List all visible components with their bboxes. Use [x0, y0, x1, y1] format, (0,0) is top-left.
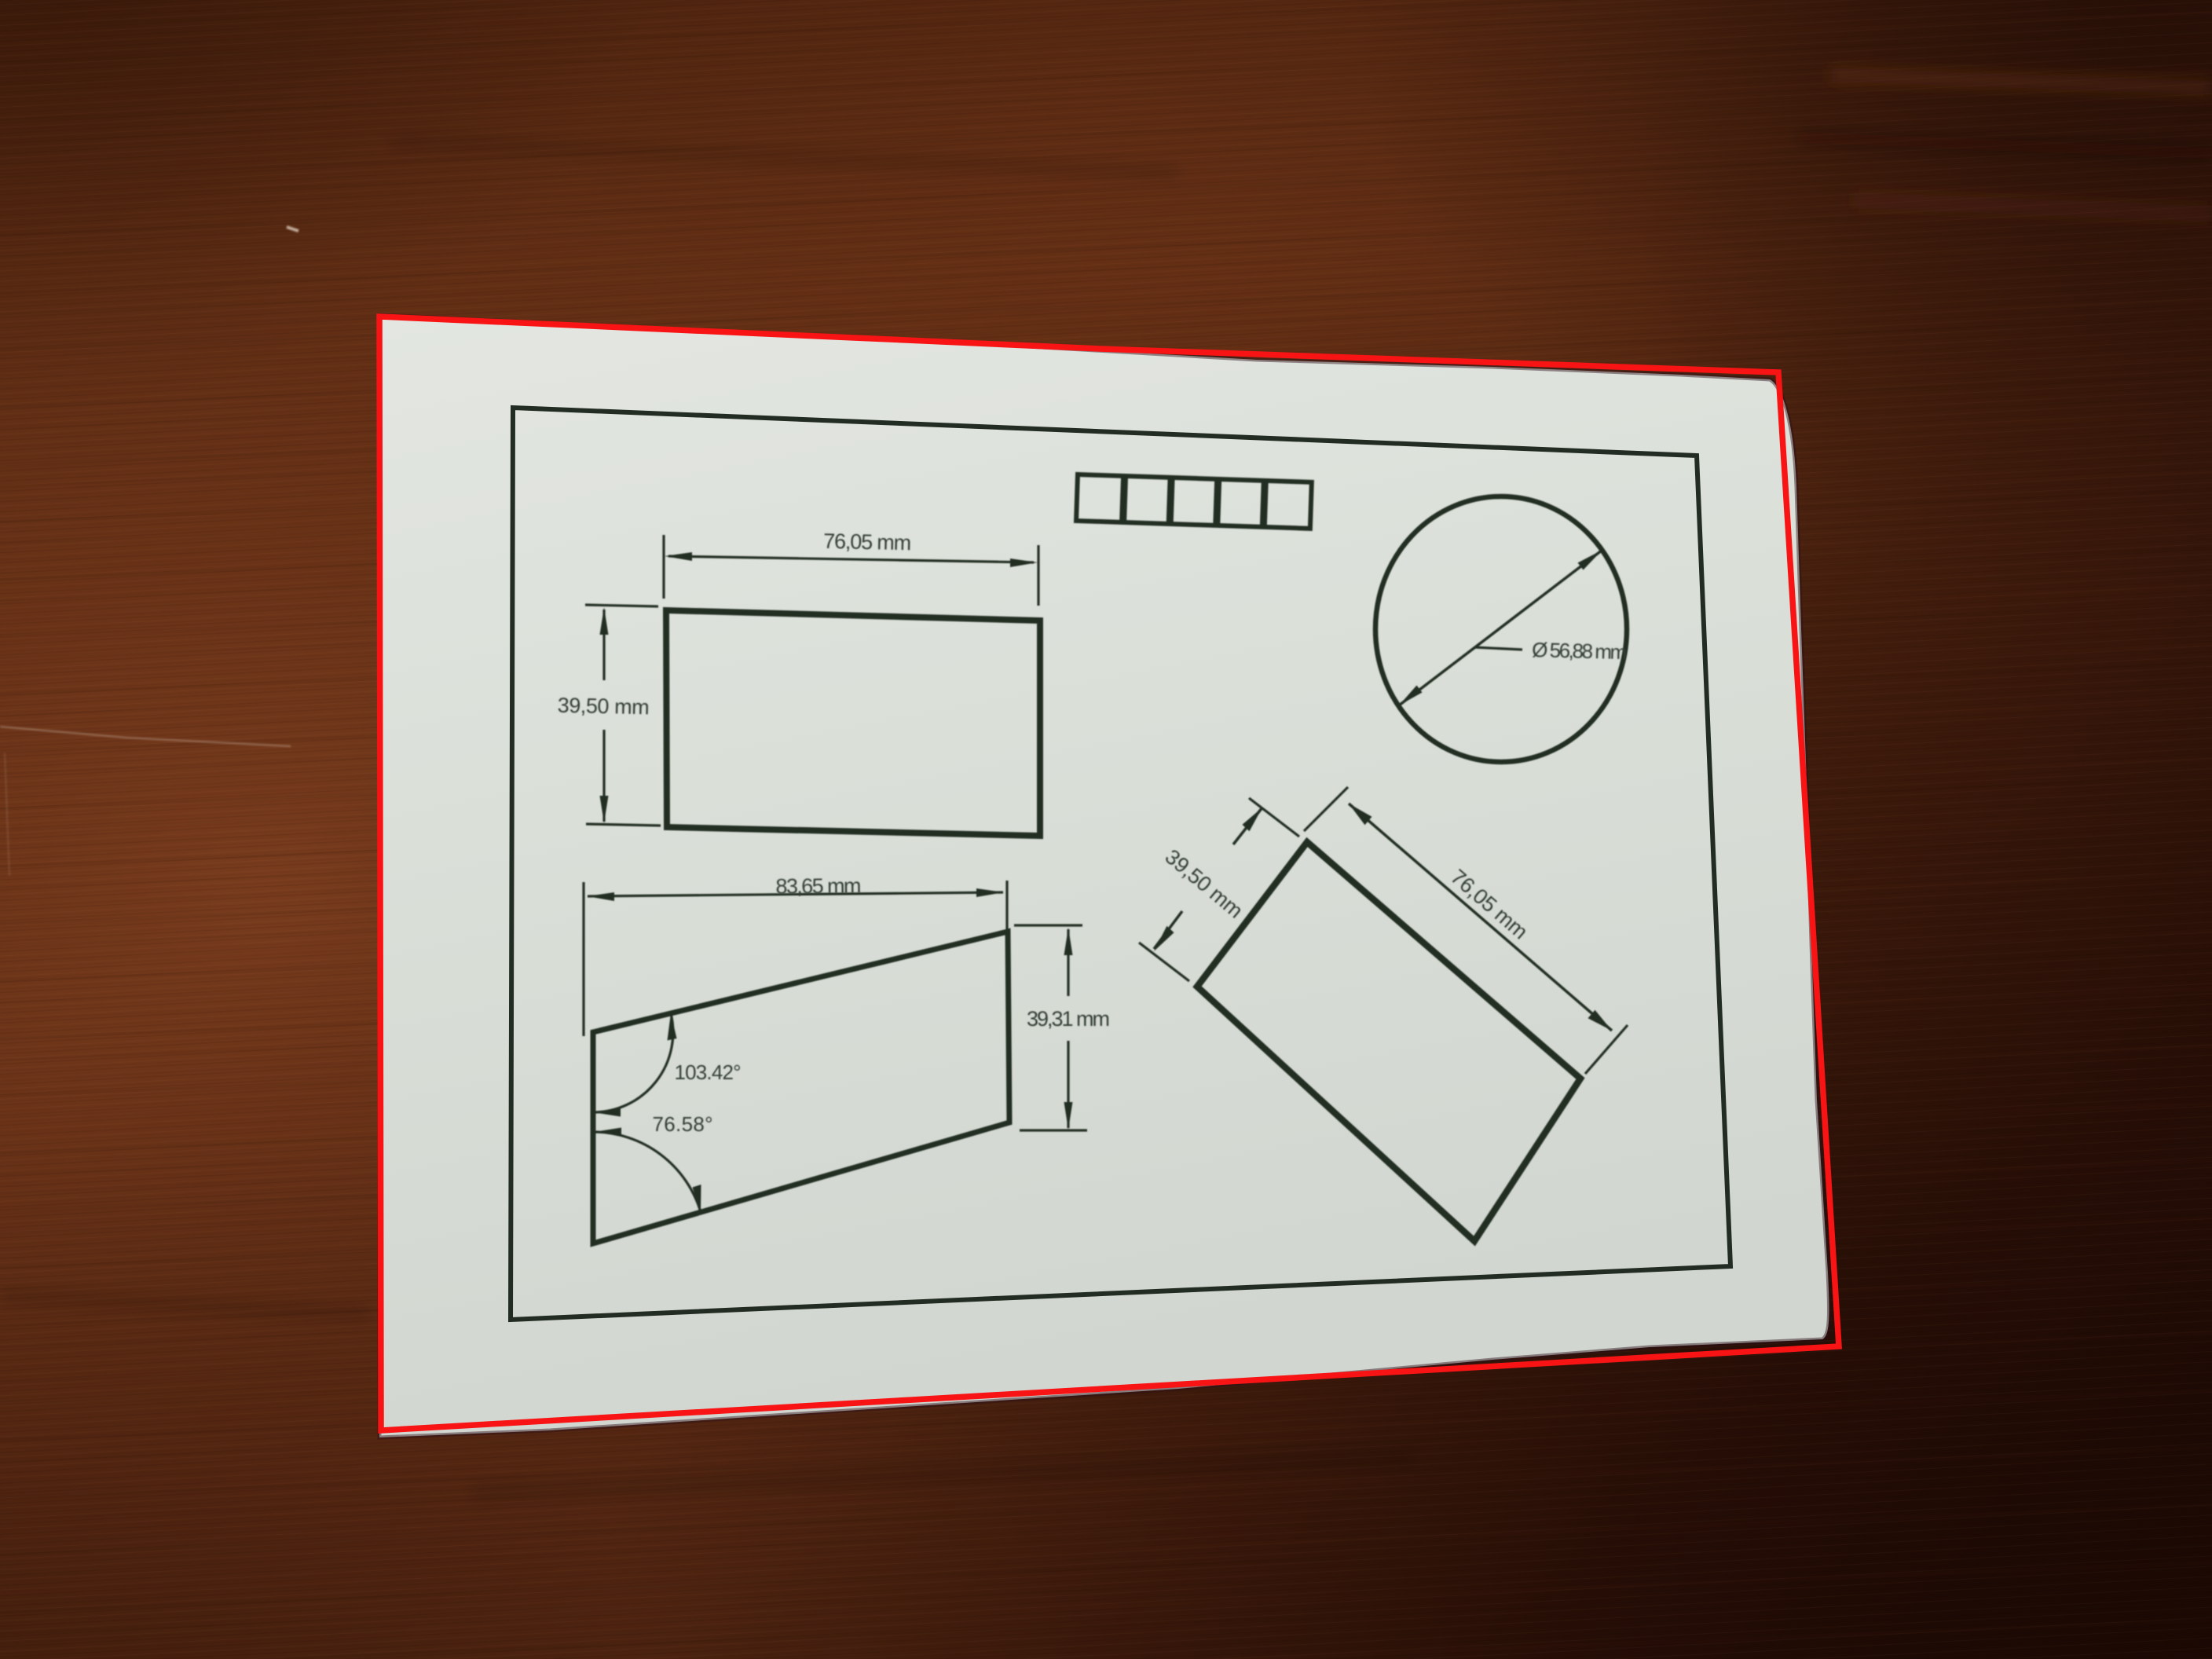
svg-text:Ø 56,88 mm: Ø 56,88 mm [1532, 638, 1628, 664]
svg-text:76.58°: 76.58° [653, 1112, 713, 1136]
svg-text:39,31 mm: 39,31 mm [1027, 1007, 1110, 1031]
svg-text:76,05 mm: 76,05 mm [823, 529, 912, 555]
svg-text:83,65 mm: 83,65 mm [775, 874, 861, 899]
svg-text:103.42°: 103.42° [675, 1060, 742, 1084]
svg-text:39,50 mm: 39,50 mm [557, 694, 650, 720]
